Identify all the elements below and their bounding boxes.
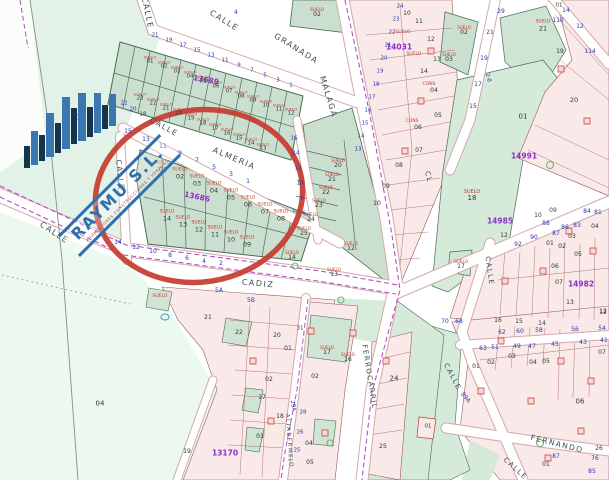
- map-canvas: [0, 0, 609, 480]
- cadastral-map: CALLECALLEGRANADAMALAGACALLEALMERIACALLE…: [0, 0, 609, 480]
